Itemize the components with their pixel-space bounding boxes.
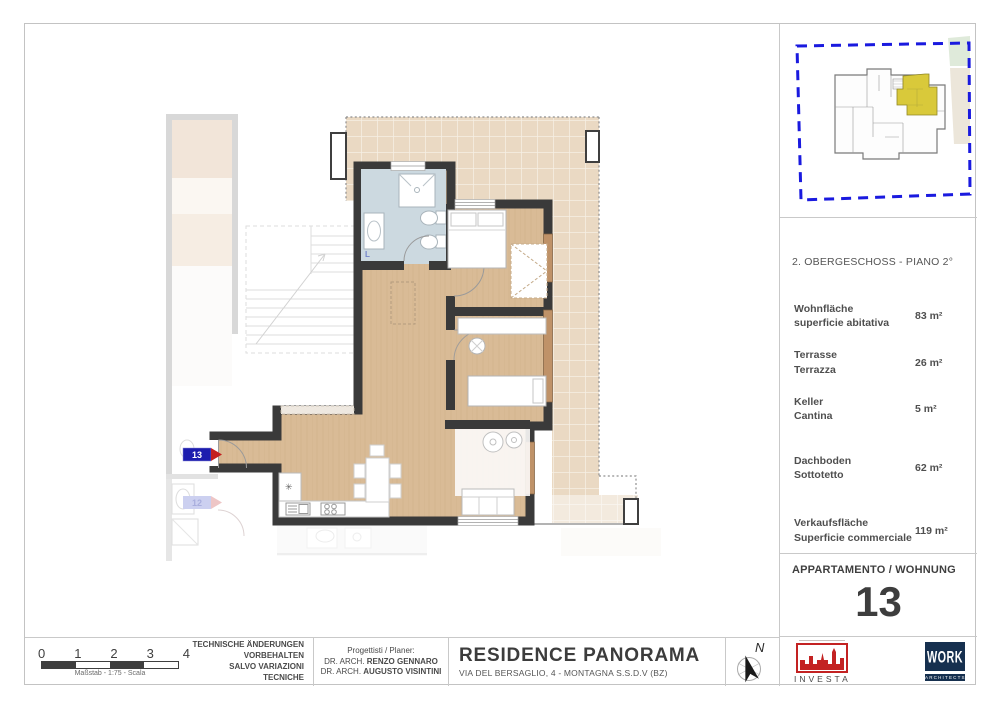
unit-marker-12-faded: 12 — [183, 496, 222, 509]
building-footprint — [835, 69, 945, 159]
work-name: WORK — [927, 647, 963, 666]
planners-cell: Progettisti / Planer: DR. ARCH. RENZO GE… — [314, 638, 449, 686]
scale-caption: Maßstab - 1:75 - Scala — [38, 670, 182, 677]
project-title-cell: RESIDENCE PANORAMA VIA DEL BERSAGLIO, 4 … — [449, 638, 726, 686]
logos-panel: INVESTA WORK ARCHITECTS — [780, 637, 977, 686]
technical-notes: TECHNISCHE ÄNDERUNGEN VORBEHALTEN SALVO … — [190, 640, 304, 683]
sofa — [462, 489, 514, 515]
neighbor-apartment-faded — [166, 114, 244, 561]
area-value: 5 m² — [915, 403, 965, 415]
apartment-panel: APPARTAMENTO / WOHNUNG 13 — [780, 554, 977, 637]
sheet: L — [0, 0, 1000, 707]
wardrobe — [511, 244, 547, 298]
floor-plan: L — [25, 24, 779, 637]
planners: Progettisti / Planer: DR. ARCH. RENZO GE… — [321, 646, 442, 678]
desk — [458, 318, 546, 334]
svg-text:N: N — [755, 640, 765, 655]
floor-title: 2. OBERGESCHOSS - PIANO 2° — [792, 256, 965, 268]
svg-text:13: 13 — [192, 450, 202, 460]
north-arrow-cell: N — [726, 638, 779, 686]
scale-bar: 0 1 2 3 4 Maßstab - 1:75 - Scala — [38, 647, 190, 677]
project-address: VIA DEL BERSAGLIO, 4 - MONTAGNA S.S.D.V … — [459, 668, 668, 678]
work-sub: ARCHITECTS — [925, 674, 965, 681]
areas-panel: 2. OBERGESCHOSS - PIANO 2° Wohnflächesup… — [780, 218, 977, 554]
drawing-page: L — [24, 23, 976, 685]
neighbor-below-faded — [277, 526, 661, 556]
site-plan-panel — [780, 24, 977, 218]
terrace-pillar — [331, 133, 346, 179]
investa-logo: INVESTA — [794, 640, 851, 684]
bathroom-label: L — [365, 250, 370, 259]
investa-name: INVESTA — [794, 674, 851, 684]
area-value: 62 m² — [915, 462, 965, 474]
north-arrow-icon: N — [733, 640, 773, 684]
area-row-wohnflaeche: Wohnflächesuperficie abitativa 83 m² — [794, 302, 965, 330]
terrace-pillar — [624, 499, 638, 524]
area-row-dachboden: DachbodenSottotetto 62 m² — [794, 454, 965, 482]
area-value: 83 m² — [915, 310, 965, 322]
work-architects-logo: WORK ARCHITECTS — [925, 642, 965, 681]
site-plan-map — [780, 24, 977, 218]
svg-text:✳: ✳ — [285, 482, 293, 492]
svg-text:12: 12 — [192, 498, 202, 508]
apartment-label: APPARTAMENTO / WOHNUNG — [792, 564, 965, 576]
sidebar: 2. OBERGESCHOSS - PIANO 2° Wohnflächesup… — [779, 24, 977, 686]
bathroom: L — [354, 169, 451, 270]
area-row-verkaufsflaeche: VerkaufsflächeSuperficie commerciale 119… — [794, 516, 965, 544]
apartment-number: 13 — [792, 578, 965, 626]
scale-ticks: 0 1 2 3 4 — [38, 647, 190, 660]
title-block: 0 1 2 3 4 Maßstab - 1:75 - Scala TECHNIS… — [25, 637, 779, 686]
area-row-terrasse: TerrasseTerrazza 26 m² — [794, 348, 965, 376]
glazed-partition — [281, 406, 354, 414]
investa-skyline-icon — [798, 645, 846, 671]
area-value: 26 m² — [915, 357, 965, 369]
area-value: 119 m² — [915, 525, 965, 537]
investa-tagline-line — [799, 640, 845, 642]
scale-cell: 0 1 2 3 4 Maßstab - 1:75 - Scala TECHNIS… — [25, 638, 314, 686]
area-row-keller: KellerCantina 5 m² — [794, 395, 965, 423]
dining-table — [366, 458, 389, 502]
terrace-pillar — [586, 131, 599, 162]
project-title: RESIDENCE PANORAMA — [459, 646, 700, 666]
